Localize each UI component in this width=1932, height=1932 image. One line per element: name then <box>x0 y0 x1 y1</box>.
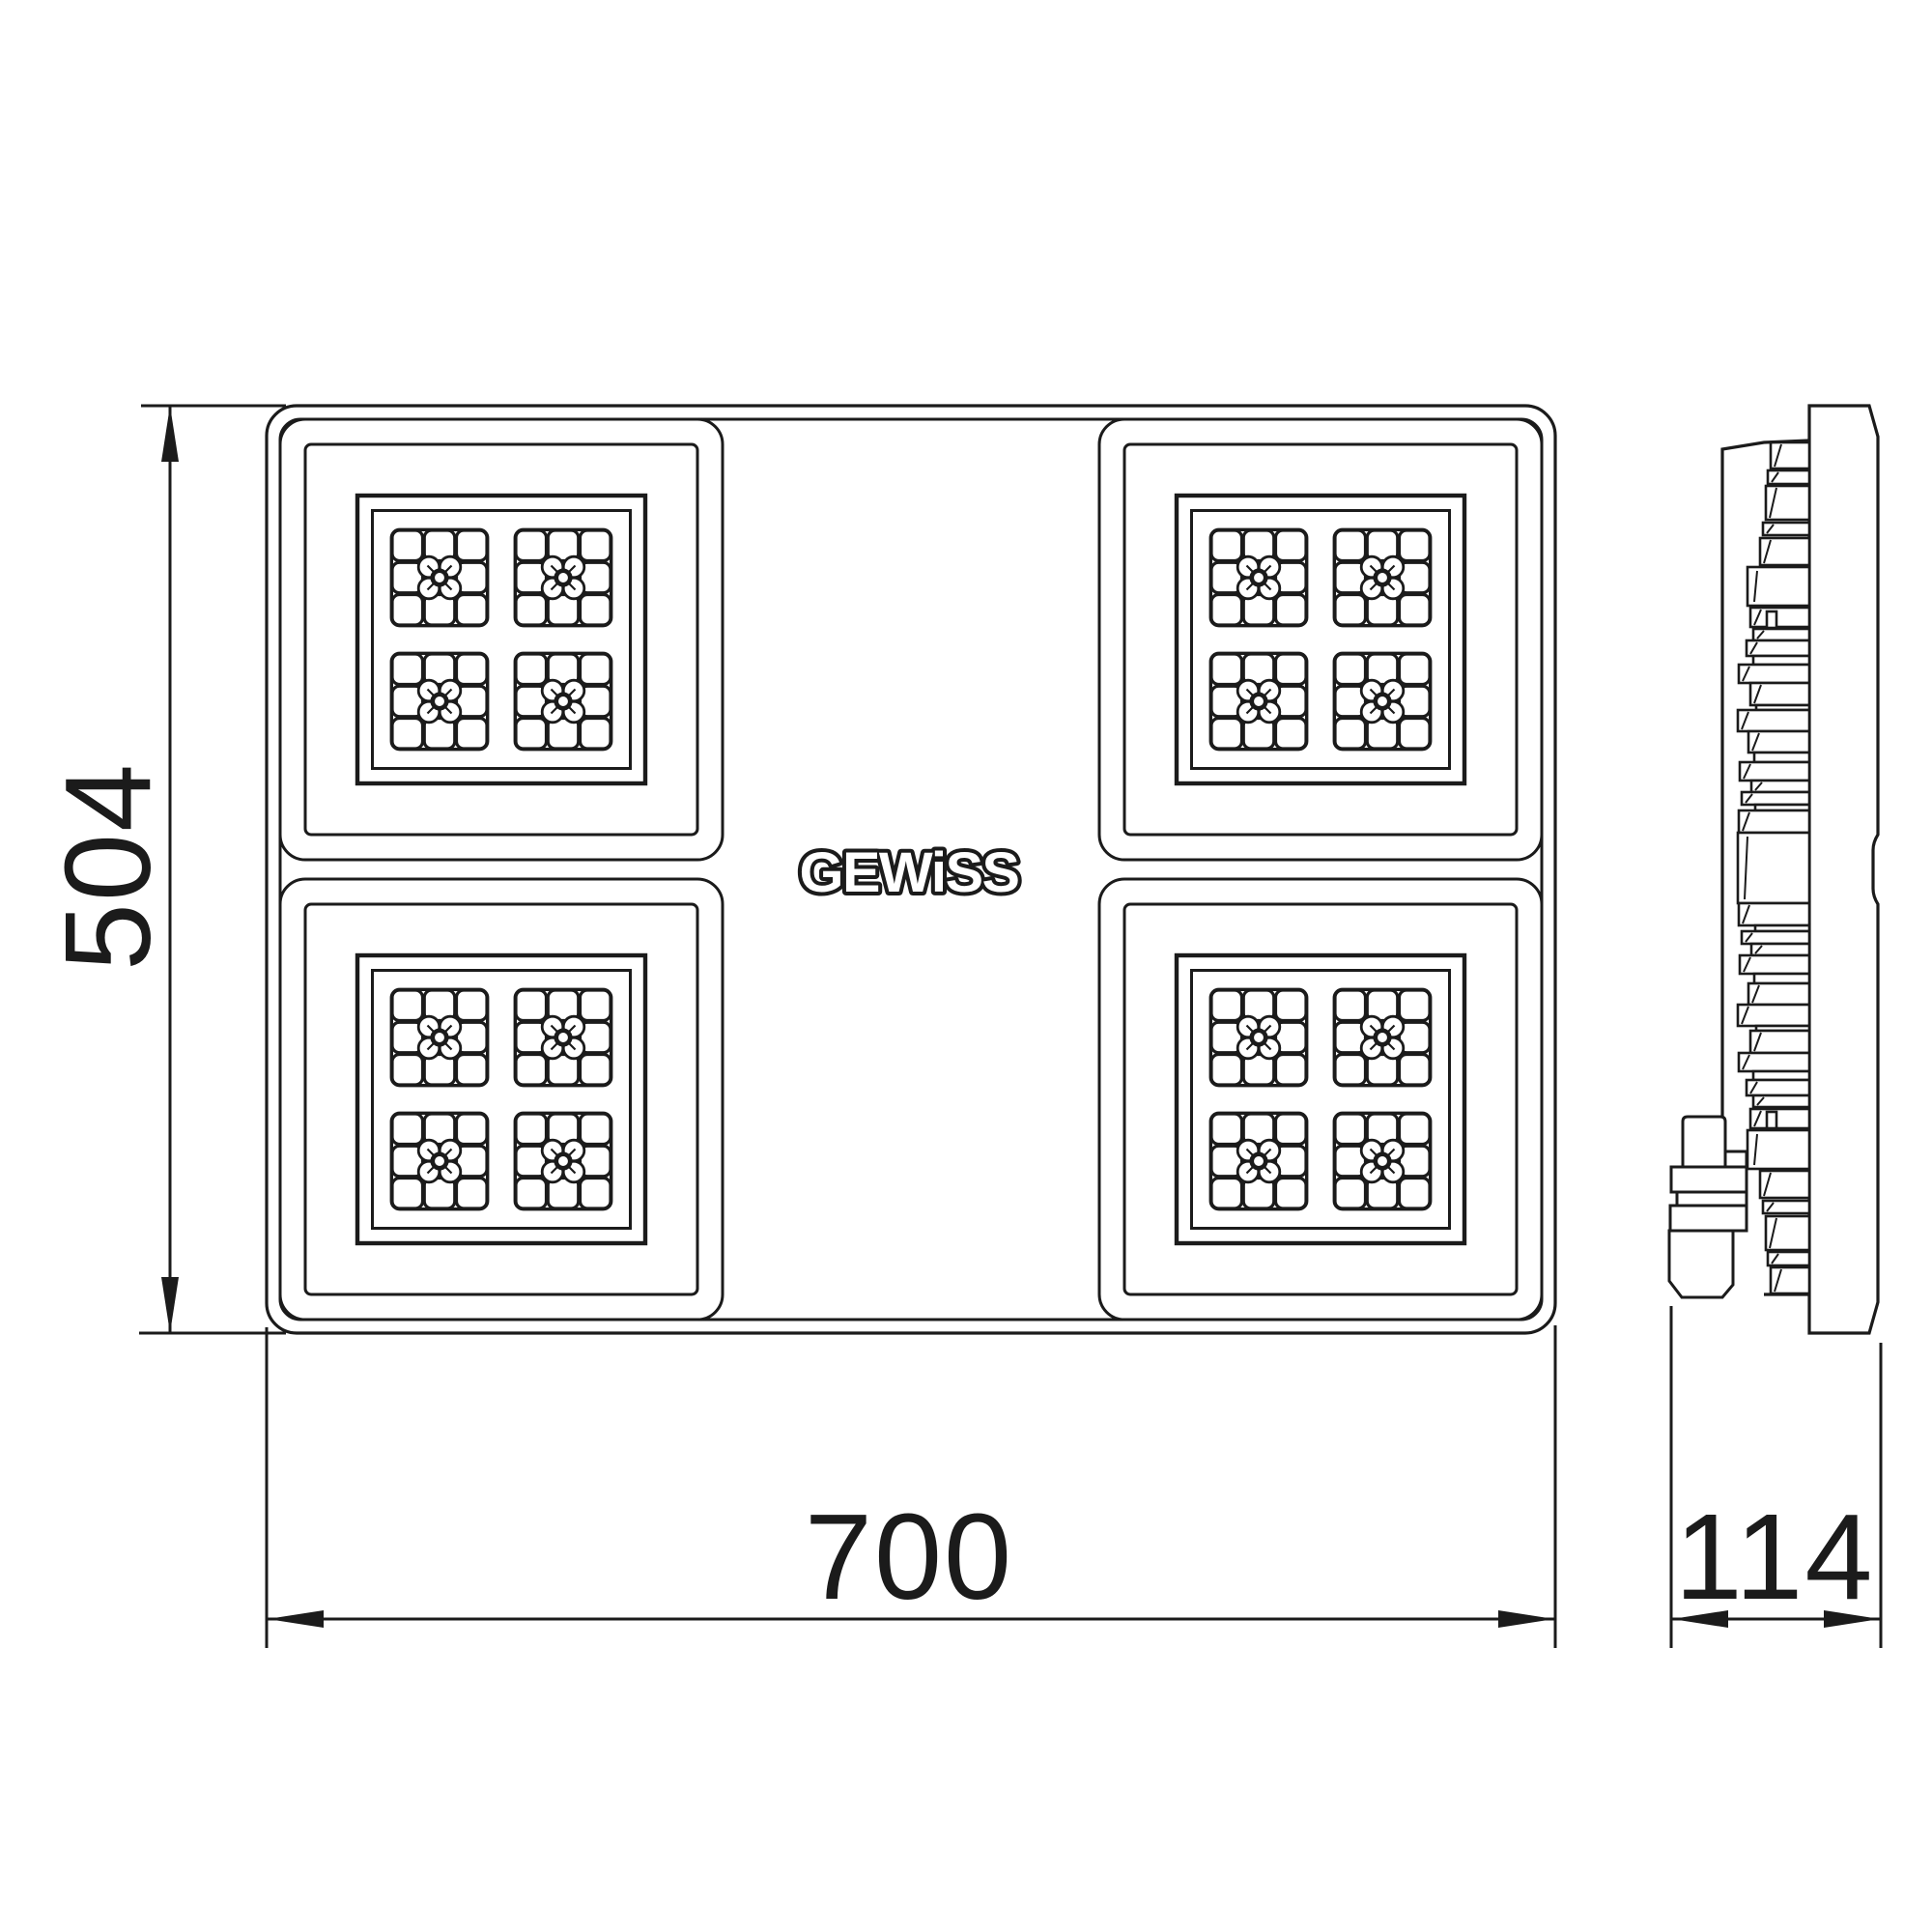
svg-text:GEWiSS: GEWiSS <box>800 841 1019 904</box>
svg-text:114: 114 <box>1675 1489 1875 1625</box>
svg-text:504: 504 <box>40 762 176 971</box>
svg-text:700: 700 <box>805 1489 1013 1625</box>
